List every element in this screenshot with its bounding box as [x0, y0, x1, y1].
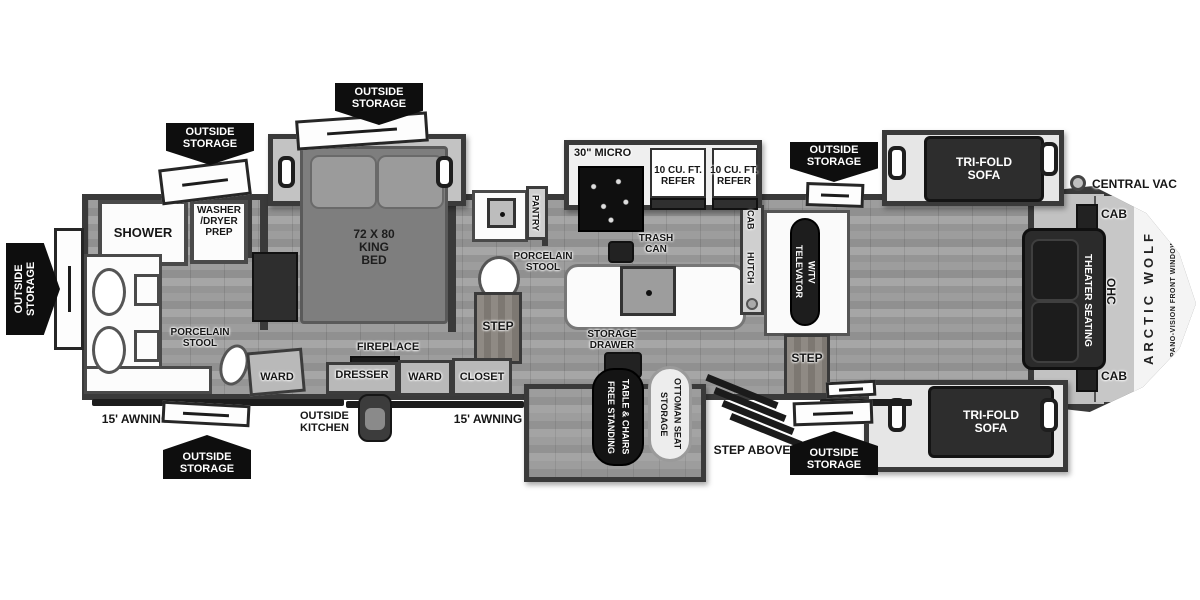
pantry-label: PANTRY [530, 190, 540, 236]
refrigerator-2-base [712, 198, 758, 210]
midbath-sink-drain [500, 212, 505, 217]
island-sink-drain [646, 290, 652, 296]
ward-bedroom-label: WARD [400, 372, 450, 384]
dresser-label: DRESSER [328, 370, 396, 382]
outside-storage-badge-rear-label: OUTSIDE STORAGE [14, 262, 38, 316]
outside-storage-badge-rear: OUTSIDE STORAGE [6, 243, 60, 335]
cab-lower-label: CAB [1096, 370, 1132, 383]
fireplace-label: FIREPLACE [352, 342, 424, 354]
tri-fold-sofa-bottom: TRI-FOLD SOFA [928, 386, 1054, 458]
sofa-top-window-right-icon [1040, 142, 1058, 176]
televator-label: TELEVATOR W/TV [792, 245, 817, 298]
refrigerator-2-label: 10 CU. FT. REFER [702, 166, 766, 188]
refrigerator-1-base [650, 198, 706, 210]
pano-vision-label: PANO-VISION FRONT WINDOW [1170, 234, 1178, 364]
vanity-faucet-2 [134, 330, 160, 362]
floorplan-canvas: CAB OHC CAB ARCTIC WOLF PANO-VISION FRON… [0, 0, 1200, 600]
closet-label: CLOSET [454, 372, 510, 384]
central-vac-icon [1070, 175, 1086, 191]
theater-seat-2 [1031, 301, 1079, 363]
storage-drawer-label: STORAGE DRAWER [576, 330, 648, 352]
cab-upper-label: CAB [1096, 208, 1132, 221]
step-above-label: STEP ABOVE [704, 444, 800, 457]
outside-storage-badge-mid-right: OUTSIDE STORAGE [790, 142, 878, 182]
door-handle [839, 387, 863, 391]
sofa-bottom-window-right-icon [1040, 398, 1058, 432]
porcelain-stool-mid-label: PORCELAIN STOOL [506, 252, 580, 274]
entry-door [826, 380, 877, 399]
door-handle [182, 178, 228, 187]
door-handle [327, 127, 396, 135]
micro-label: 30" MICRO [574, 148, 658, 160]
storage-ottoman: STORAGE OTTOMAN SEAT [648, 366, 692, 462]
step-living-label: STEP [790, 352, 824, 365]
island-sink [620, 266, 676, 316]
porcelain-stool-rear-label: PORCELAIN STOOL [158, 328, 242, 350]
storage-door-bottom-right [793, 400, 874, 427]
storage-ottoman-label: STORAGE OTTOMAN SEAT [657, 378, 684, 449]
shower-label: SHOWER [100, 226, 186, 240]
entry-steps-icon [700, 382, 800, 446]
hutch-label: HUTCH [745, 252, 755, 284]
bedroom-window-left-icon [278, 156, 295, 188]
vanity-sink-2 [92, 326, 126, 374]
bedroom-wardrobe [252, 252, 298, 322]
bedroom-window-right-icon [436, 156, 453, 188]
cab-hutch-cab-label: CAB [745, 210, 755, 230]
door-handle [813, 411, 854, 415]
tri-fold-sofa-top-label: TRI-FOLD SOFA [956, 156, 1012, 182]
theater-seat-1 [1031, 239, 1079, 301]
wall-bedroom-midbath [448, 198, 456, 332]
outside-kitchen-grill-icon [358, 394, 392, 442]
outside-storage-badge-bottom-left: OUTSIDE STORAGE [163, 435, 251, 479]
vac-port-icon [746, 298, 758, 310]
washer-dryer-label: WASHER /DRYER PREP [188, 206, 250, 238]
televator-unit: TELEVATOR W/TV [790, 218, 820, 326]
door-handle [821, 193, 850, 197]
awning-mid-label: 15' AWNING [448, 413, 528, 426]
king-bed-label: 72 X 80 KING BED [338, 228, 410, 267]
midbath-sink [487, 198, 516, 228]
storage-door-bottom-left [161, 401, 250, 428]
range-micro-unit [578, 166, 644, 232]
vanity-faucet-1 [134, 274, 160, 306]
grill-band [365, 408, 385, 430]
arctic-wolf-logo: ARCTIC WOLF [1142, 220, 1156, 376]
free-standing-table: FREE STANDING TABLE & CHAIRS [592, 368, 644, 466]
bed-pillow-right [377, 155, 444, 209]
door-handle [68, 266, 71, 312]
outside-kitchen-label: OUTSIDE KITCHEN [300, 411, 362, 435]
refrigerator-1-label: 10 CU. FT. REFER [646, 166, 710, 188]
theater-seating-unit: THEATER SEATING [1022, 228, 1106, 370]
theater-seating-label: THEATER SEATING [1081, 241, 1092, 359]
tri-fold-sofa-bottom-label: TRI-FOLD SOFA [963, 409, 1019, 435]
sofa-top-window-left-icon [888, 146, 906, 180]
tri-fold-sofa-top: TRI-FOLD SOFA [924, 136, 1044, 202]
central-vac-label: CENTRAL VAC [1092, 178, 1182, 191]
storage-door-mid-right [806, 182, 865, 208]
ward-rear-label: WARD [252, 372, 302, 384]
free-standing-table-label: FREE STANDING TABLE & CHAIRS [604, 379, 633, 454]
trash-can-label: TRASH CAN [626, 234, 686, 256]
door-handle [183, 411, 228, 416]
bed-pillow-left [310, 155, 377, 209]
step-midbath-label: STEP [482, 320, 514, 333]
vanity-sink-1 [92, 268, 126, 316]
